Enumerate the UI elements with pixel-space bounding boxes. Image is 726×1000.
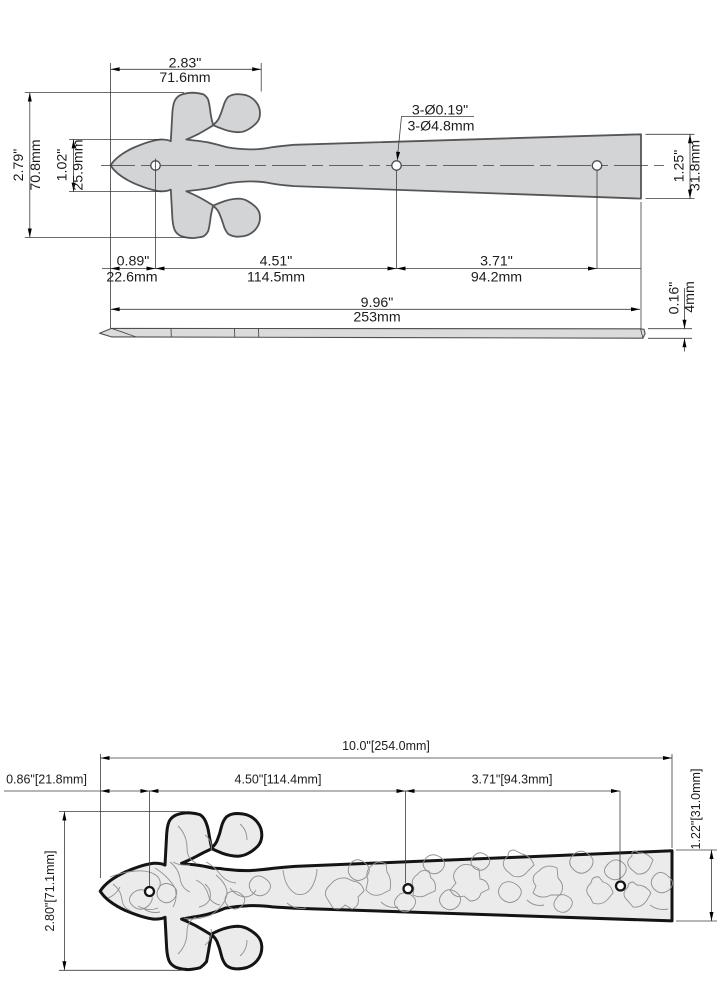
svg-text:70.8mm: 70.8mm (28, 139, 44, 190)
svg-text:1.22"[31.0mm]: 1.22"[31.0mm] (689, 769, 703, 850)
svg-text:25.9mm: 25.9mm (71, 139, 87, 190)
svg-text:31.8mm: 31.8mm (687, 140, 703, 191)
svg-text:114.5mm: 114.5mm (247, 270, 305, 286)
svg-text:71.6mm: 71.6mm (159, 70, 210, 86)
svg-text:4mm: 4mm (682, 281, 698, 313)
svg-text:2.83": 2.83" (169, 56, 202, 72)
svg-text:10.0"[254.0mm]: 10.0"[254.0mm] (342, 739, 430, 753)
svg-text:22.6mm: 22.6mm (106, 270, 157, 286)
svg-text:94.2mm: 94.2mm (471, 270, 522, 286)
svg-text:0.16": 0.16" (667, 282, 683, 315)
svg-text:4.50"[114.4mm]: 4.50"[114.4mm] (235, 773, 322, 787)
svg-text:3-Ø4.8mm: 3-Ø4.8mm (407, 119, 474, 135)
svg-text:9.96": 9.96" (361, 295, 394, 311)
svg-text:253mm: 253mm (353, 310, 400, 326)
svg-text:3.71": 3.71" (480, 254, 513, 270)
svg-text:1.25": 1.25" (672, 150, 688, 183)
svg-text:3.71"[94.3mm]: 3.71"[94.3mm] (472, 773, 553, 787)
svg-text:4.51": 4.51" (260, 254, 293, 270)
svg-text:2.80"[71.1mm]: 2.80"[71.1mm] (43, 851, 57, 932)
svg-text:0.86"[21.8mm]: 0.86"[21.8mm] (6, 773, 87, 787)
svg-text:1.02": 1.02" (55, 149, 71, 182)
svg-text:0.89": 0.89" (117, 254, 150, 270)
svg-text:3-Ø0.19": 3-Ø0.19" (412, 102, 468, 118)
svg-text:2.79": 2.79" (11, 149, 27, 182)
